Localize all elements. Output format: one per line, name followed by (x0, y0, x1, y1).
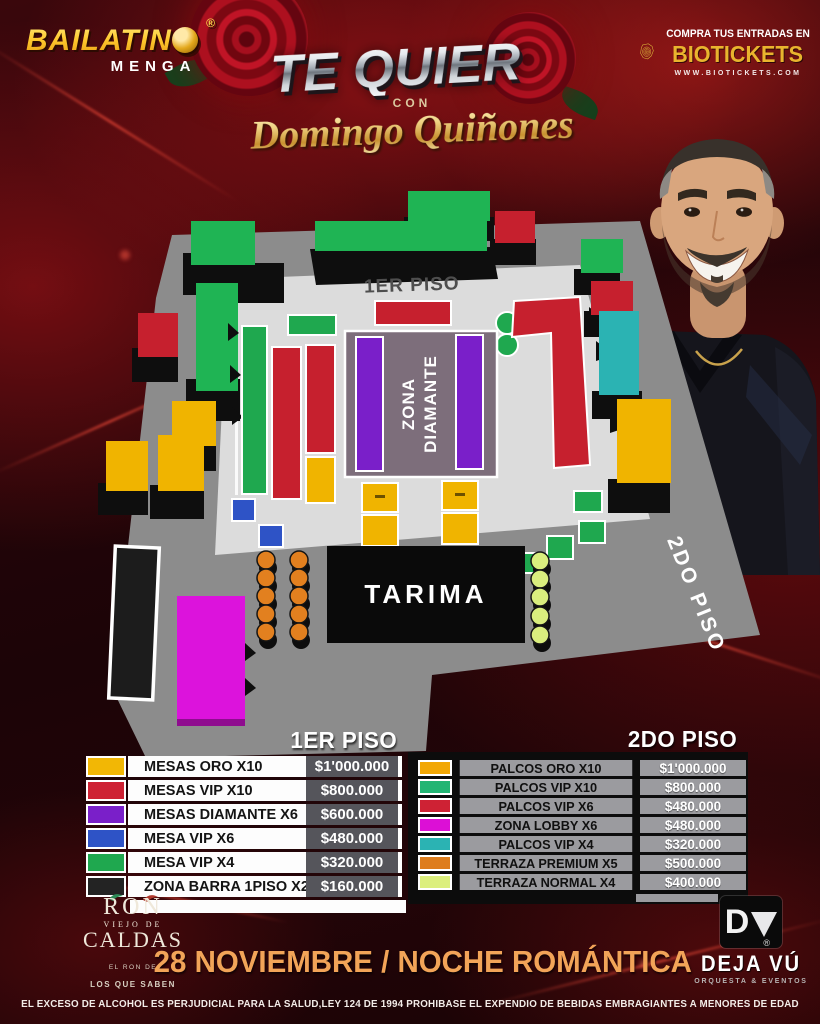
dejavu-name: DEJA VÚ (695, 951, 807, 977)
bailatino-menga-label: MENGA (26, 58, 226, 75)
legend-label: PALCOS VIP X10 (460, 779, 632, 795)
legend-price: $320.000 (306, 852, 402, 873)
diamante-label-line2: DIAMANTE (421, 355, 440, 453)
legend-label: MESAS ORO X10 (128, 756, 306, 777)
legend-price: $480.000 (306, 828, 402, 849)
legend-label: PALCOS VIP X6 (460, 798, 632, 814)
dv-triangle-v-icon (751, 912, 777, 937)
legal-disclaimer: EL EXCESO DE ALCOHOL ES PERJUDICIAL PARA… (8, 999, 812, 1010)
color-swatch-palcos-vip6 (418, 798, 452, 814)
legend-row: MESAS DIAMANTE X6 $600.000 (86, 804, 402, 825)
registered-mark: ® (206, 16, 216, 30)
legend-label: TERRAZA NORMAL X4 (460, 874, 632, 890)
map-zone-lobby (177, 596, 256, 726)
legend-row: PALCOS VIP X10 $800.000 (418, 779, 746, 795)
biotickets-url: WWW.BIOTICKETS.COM (674, 70, 801, 77)
ron-tagline-1: EL RON DE (109, 964, 157, 971)
legend-floor1-header: 1ER PISO (85, 727, 397, 754)
bailatino-wordmark: BAILATINO® (26, 24, 226, 58)
legend-row: MESA VIP X6 $480.000 (86, 828, 402, 849)
gold-sphere-o: O (172, 27, 198, 53)
legend-floor2-header: 2DO PISO (425, 726, 737, 753)
legend-price: $480.000 (640, 817, 746, 833)
dejavu-tagline: ORQUESTA & EVENTOS (690, 978, 812, 985)
map-zone-diamante: ZONA DIAMANTE (345, 331, 497, 477)
legend-price: $800.000 (640, 779, 746, 795)
color-swatch-zona-lobby (418, 817, 452, 833)
legend-row: MESAS ORO X10 $1'000.000 (86, 756, 402, 777)
diamante-label-line1: ZONA (399, 378, 418, 430)
bailatino-text: BAILATIN (26, 24, 172, 57)
event-poster: BAILATINO® MENGA TE QUIER♥ CON Domingo Q… (0, 0, 820, 1024)
legend-row: PALCOS VIP X6 $480.000 (418, 798, 746, 814)
dejavu-logo: D ® DEJA VÚ ORQUESTA & EVENTOS (690, 896, 812, 985)
legend-row: ZONA LOBBY X6 $480.000 (418, 817, 746, 833)
legend-label: ZONA LOBBY X6 (460, 817, 632, 833)
legend-label: TERRAZA PREMIUM X5 (460, 855, 632, 871)
tarima-label: TARIMA (364, 579, 487, 609)
map-zone-terraza-normal (531, 552, 551, 652)
title-te-quiero: TE QUIER♥ (221, 28, 603, 104)
legend-row: TERRAZA NORMAL X4 $400.000 (418, 874, 746, 890)
legend-price: $320.000 (640, 836, 746, 852)
map-zone-barra (109, 546, 160, 700)
color-swatch-palcos-vip4 (418, 836, 452, 852)
legend-label: PALCOS ORO X10 (460, 760, 632, 776)
legend-price: $800.000 (306, 780, 402, 801)
legend-label: MESA VIP X4 (128, 852, 306, 873)
legend-row: MESA VIP X4 $320.000 (86, 852, 402, 873)
legend-price: $500.000 (640, 855, 746, 871)
legend-price: $1'000.000 (306, 756, 402, 777)
legend-label: MESA VIP X6 (128, 828, 306, 849)
biotickets-wordmark: BIOTICKETS (673, 41, 804, 68)
legend-price: $160.000 (306, 876, 402, 897)
dv-letter-d: D (725, 905, 750, 939)
color-swatch-terraza-normal (418, 874, 452, 890)
legend-price: $600.000 (306, 804, 402, 825)
color-swatch-mesas-diamante (86, 804, 126, 825)
biotickets-block: COMPRA TUS ENTRADAS EN BIOTICKETS WWW.BI… (640, 24, 816, 80)
color-swatch-mesas-vip10 (86, 780, 126, 801)
map-floor1-label: 1ER PISO (364, 273, 460, 297)
legend-row: PALCOS VIP X4 $320.000 (418, 836, 746, 852)
event-title: TE QUIER♥ CON Domingo Quiñones (222, 38, 602, 153)
tickets-tagline: COMPRA TUS ENTRADAS EN (666, 28, 810, 40)
fingerprint-map-icon (640, 24, 654, 80)
legend-row: TERRAZA PREMIUM X5 $500.000 (418, 855, 746, 871)
event-date-line: 28 NOVIEMBRE / NOCHE ROMÁNTICA (154, 944, 672, 980)
dv-monogram: D ® (720, 896, 782, 948)
dejavu-registered-mark: ® (763, 938, 770, 948)
legend-price: $480.000 (640, 798, 746, 814)
ron-line1: RON (28, 897, 238, 919)
legend-price: $400.000 (640, 874, 746, 890)
legend-row: PALCOS ORO X10 $1'000.000 (418, 760, 746, 776)
legend-row: MESAS VIP X10 $800.000 (86, 780, 402, 801)
legend-floor2-table: PALCOS ORO X10 $1'000.000 PALCOS VIP X10… (408, 752, 748, 904)
color-swatch-mesa-vip4 (86, 852, 126, 873)
legend-price: $1'000.000 (640, 760, 746, 776)
map-zone-tarima: TARIMA (327, 546, 525, 643)
bailatino-logo: BAILATINO® MENGA (26, 24, 226, 75)
legend-label: PALCOS VIP X4 (460, 836, 632, 852)
color-swatch-terraza-premium (418, 855, 452, 871)
color-swatch-palcos-oro (418, 760, 452, 776)
color-swatch-mesa-vip6 (86, 828, 126, 849)
title-text: TE QUIER (269, 32, 522, 104)
venue-seating-map: 1ER PISO (60, 183, 760, 763)
ron-tagline-2: LOS QUE SABEN (90, 980, 176, 989)
color-swatch-mesas-oro (86, 756, 126, 777)
legend-label: MESAS VIP X10 (128, 780, 306, 801)
legend-label: MESAS DIAMANTE X6 (128, 804, 306, 825)
color-swatch-palcos-vip10 (418, 779, 452, 795)
